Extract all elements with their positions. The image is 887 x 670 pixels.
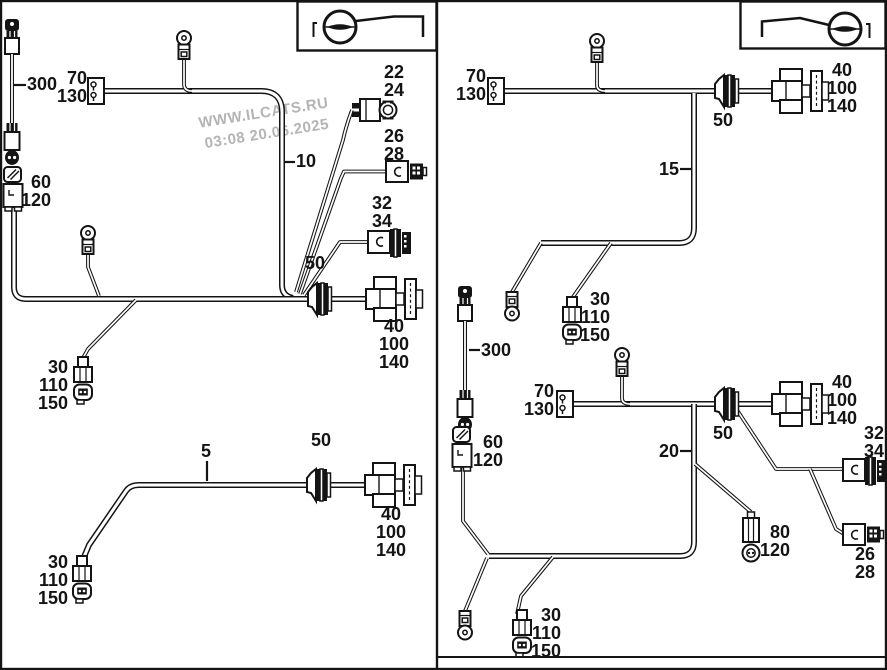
grommet-50-left-main — [308, 283, 332, 315]
harness-drawing — [0, 0, 887, 670]
ring-terminal — [590, 34, 604, 62]
connector-30-110-150-right-bottom — [513, 610, 531, 657]
connector-32-34-right — [843, 457, 886, 485]
ring-terminal — [615, 348, 629, 376]
page-frame — [1, 0, 886, 670]
ring-terminal — [458, 611, 472, 640]
ring-terminal — [177, 31, 191, 59]
connector-70-130-left — [88, 78, 104, 104]
connector-80-120-right — [743, 512, 760, 562]
right-drive-legend-box — [741, 2, 886, 49]
connector-40-100-140-left-lower — [365, 463, 422, 507]
connector-26-28-right — [843, 524, 884, 545]
lamp-socket-300-left — [5, 19, 20, 165]
wiring-diagram-page: WWW.ILCATS.RU 03:08 20.06.2025 — [0, 0, 887, 670]
steering-wheel-right-drive-icon — [762, 13, 870, 45]
connector-26-28-left — [386, 161, 427, 182]
connector-30-110-150-right-mid — [563, 297, 581, 344]
socket-22-24 — [352, 99, 397, 121]
ring-terminal — [81, 226, 95, 254]
connector-40-100-140-left-main — [366, 277, 423, 321]
sensor-60-120-right — [453, 427, 472, 471]
connector-30-110-150-left-lower — [73, 556, 91, 603]
connector-40-100-140-right-top — [772, 69, 829, 113]
connector-70-130-right-top — [488, 78, 504, 104]
connector-70-130-right-mid — [557, 391, 573, 417]
connector-32-34-left — [368, 229, 411, 257]
grommet-50-left-lower — [307, 469, 331, 501]
connector-30-110-150-left-main — [74, 357, 92, 404]
steering-wheel-left-drive-icon — [314, 11, 424, 43]
ring-terminal — [505, 292, 519, 321]
connector-40-100-140-right-mid — [772, 382, 829, 426]
callout-leaders — [13, 85, 692, 481]
left-drive-legend-box — [298, 2, 437, 51]
sensor-60-120-left — [4, 167, 23, 211]
lamp-socket-300-right — [458, 286, 473, 432]
grommet-50-right-mid — [715, 388, 739, 420]
grommet-50-right-top — [715, 75, 739, 107]
